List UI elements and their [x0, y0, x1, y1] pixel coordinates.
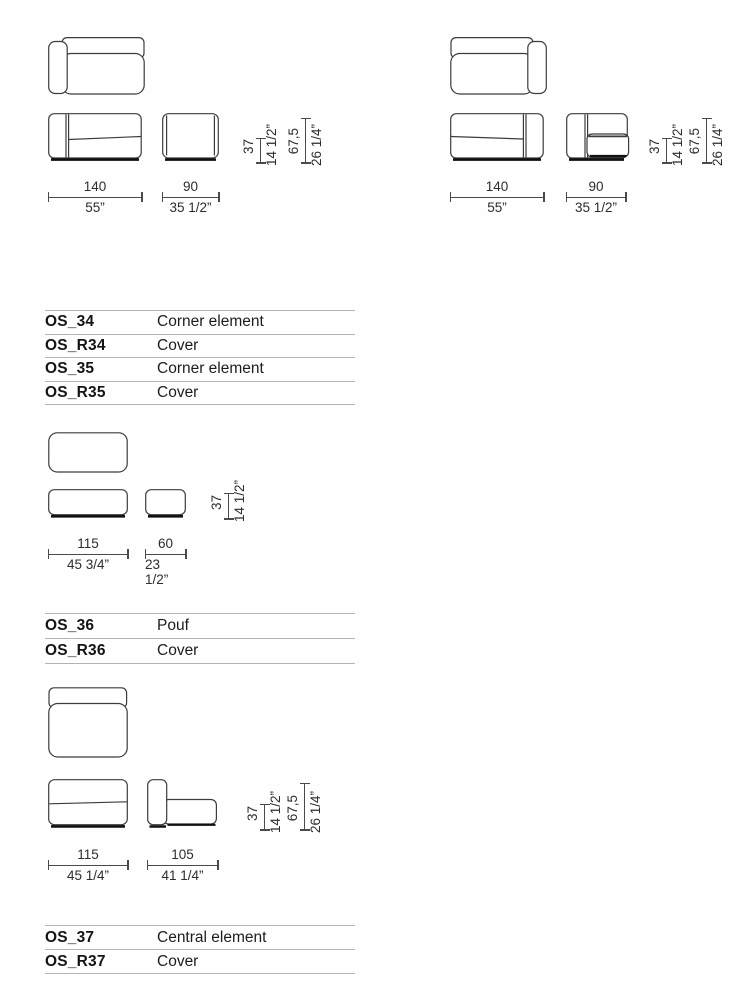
product-table-corner-elements: OS_34 Corner element OS_R34 Cover OS_35 … — [45, 310, 355, 405]
width-dim-main: 140 55” — [450, 180, 544, 216]
table-row: OS_37 Central element — [45, 926, 355, 950]
spec-sheet-page: 37 14 1/2” 67,5 26 1/4” 140 55” 90 35 1/… — [0, 0, 743, 1000]
height-dim-seat: 37 14 1/2” — [242, 124, 279, 163]
dim-line — [706, 118, 707, 163]
product-label: Cover — [157, 953, 198, 971]
dim-inch-value: 45 3/4” — [67, 558, 109, 573]
height-dim-total: 67,5 26 1/4” — [287, 118, 324, 163]
dim-inch-value: 26 1/4” — [309, 791, 323, 833]
table-row: OS_34 Corner element — [45, 311, 355, 335]
dim-cm-value: 105 — [171, 848, 194, 863]
pouf-front-view — [48, 489, 128, 518]
dim-cm-value: 37 — [246, 806, 260, 821]
dim-inch-value: 35 1/2” — [169, 201, 211, 216]
dim-line — [666, 138, 667, 163]
table-row: OS_35 Corner element — [45, 358, 355, 382]
dim-line — [48, 554, 128, 555]
pouf-shape — [49, 490, 128, 515]
dim-line — [450, 197, 544, 198]
dim-cm-value: 90 — [588, 180, 603, 195]
product-label: Cover — [157, 337, 198, 355]
dim-cm-value: 140 — [84, 180, 107, 195]
product-code: OS_R37 — [45, 953, 157, 971]
pouf-side-view — [145, 489, 186, 518]
pouf-shape — [49, 433, 127, 472]
product-code: OS_36 — [45, 617, 157, 635]
product-label: Central element — [157, 929, 266, 947]
dim-inch-value: 35 1/2” — [575, 201, 617, 216]
seat-shape — [451, 54, 533, 95]
dim-inch-value: 26 1/4” — [711, 124, 725, 166]
dim-inch-value: 14 1/2” — [269, 791, 283, 833]
height-dim-total: 67,5 26 1/4” — [688, 118, 725, 163]
dim-inch-value: 41 1/4” — [161, 869, 203, 884]
dim-cm-value: 37 — [242, 139, 256, 154]
height-dim-seat: 37 14 1/2” — [210, 480, 247, 519]
seat-shape — [49, 704, 127, 758]
width-dim-side: 105 41 1/4” — [147, 848, 218, 884]
seat-shape — [587, 134, 629, 157]
dim-line — [48, 197, 142, 198]
armrest-shape — [49, 42, 67, 94]
product-table-central-element: OS_37 Central element OS_R37 Cover — [45, 925, 355, 974]
dim-line — [145, 554, 186, 555]
dim-cm-value: 60 — [158, 537, 173, 552]
dim-inch-value: 14 1/2” — [671, 124, 685, 166]
dim-cm-value: 67,5 — [286, 795, 300, 821]
pouf-top-view — [48, 432, 128, 473]
dim-inch-value: 45 1/4” — [67, 869, 109, 884]
dim-line — [162, 197, 219, 198]
dim-inch-value: 23 1/2” — [145, 558, 186, 588]
width-dim-main: 140 55” — [48, 180, 142, 216]
product-code: OS_34 — [45, 313, 157, 331]
product-code: OS_R36 — [45, 642, 157, 660]
product-code: OS_35 — [45, 360, 157, 378]
product-label: Cover — [157, 384, 198, 402]
pouf-shape — [146, 490, 186, 515]
dim-cm-value: 90 — [183, 180, 198, 195]
dim-cm-value: 115 — [77, 537, 99, 552]
dim-line — [147, 865, 218, 866]
body-outline — [49, 114, 142, 158]
dim-line — [566, 197, 626, 198]
central-side-view — [147, 779, 218, 828]
central-front-view — [48, 779, 128, 828]
table-row: OS_36 Pouf — [45, 614, 355, 639]
dim-line — [304, 783, 305, 830]
corner-right-front-view — [450, 113, 544, 162]
dim-inch-value: 14 1/2” — [233, 480, 247, 522]
width-dim-main: 115 45 3/4” — [48, 537, 128, 573]
product-code: OS_R35 — [45, 384, 157, 402]
table-row: OS_R34 Cover — [45, 335, 355, 359]
product-table-pouf: OS_36 Pouf OS_R36 Cover — [45, 613, 355, 664]
corner-left-side-view — [162, 113, 219, 162]
corner-left-top-view — [48, 33, 145, 95]
height-dim-total: 67,5 26 1/4” — [286, 783, 323, 830]
dim-cm-value: 67,5 — [688, 128, 702, 154]
dim-inch-value: 55” — [85, 201, 105, 216]
corner-right-side-view — [566, 113, 629, 162]
dim-line — [228, 493, 229, 519]
dim-line — [264, 804, 265, 830]
product-code: OS_R34 — [45, 337, 157, 355]
dim-inch-value: 14 1/2” — [265, 124, 279, 166]
backrest-shape — [148, 780, 167, 825]
dim-cm-value: 140 — [486, 180, 509, 195]
height-dim-seat: 37 14 1/2” — [648, 124, 685, 163]
width-dim-side: 90 35 1/2” — [566, 180, 626, 216]
product-label: Pouf — [157, 617, 189, 635]
product-label: Cover — [157, 642, 198, 660]
body-outline — [451, 114, 544, 158]
width-dim-side: 60 23 1/2” — [145, 537, 186, 588]
central-top-view — [48, 687, 128, 758]
corner-right-top-view — [450, 33, 547, 95]
dim-inch-value: 26 1/4” — [310, 124, 324, 166]
product-label: Corner element — [157, 360, 264, 378]
dim-inch-value: 55” — [487, 201, 507, 216]
width-dim-side: 90 35 1/2” — [162, 180, 219, 216]
width-dim-main: 115 45 1/4” — [48, 848, 128, 884]
seat-shape — [62, 54, 144, 95]
table-row: OS_R37 Cover — [45, 950, 355, 974]
dim-cm-value: 67,5 — [287, 128, 301, 154]
dim-line — [48, 865, 128, 866]
body-outline — [163, 114, 219, 158]
table-row: OS_R36 Cover — [45, 639, 355, 664]
seat-shape — [163, 800, 216, 825]
dim-line — [260, 138, 261, 163]
corner-left-front-view — [48, 113, 142, 162]
table-row: OS_R35 Cover — [45, 382, 355, 406]
dim-line — [305, 118, 306, 163]
dim-cm-value: 37 — [210, 495, 224, 510]
armrest-shape — [528, 42, 547, 94]
dim-cm-value: 115 — [77, 848, 99, 863]
product-code: OS_37 — [45, 929, 157, 947]
dim-cm-value: 37 — [648, 139, 662, 154]
product-label: Corner element — [157, 313, 264, 331]
height-dim-seat: 37 14 1/2” — [246, 791, 283, 830]
